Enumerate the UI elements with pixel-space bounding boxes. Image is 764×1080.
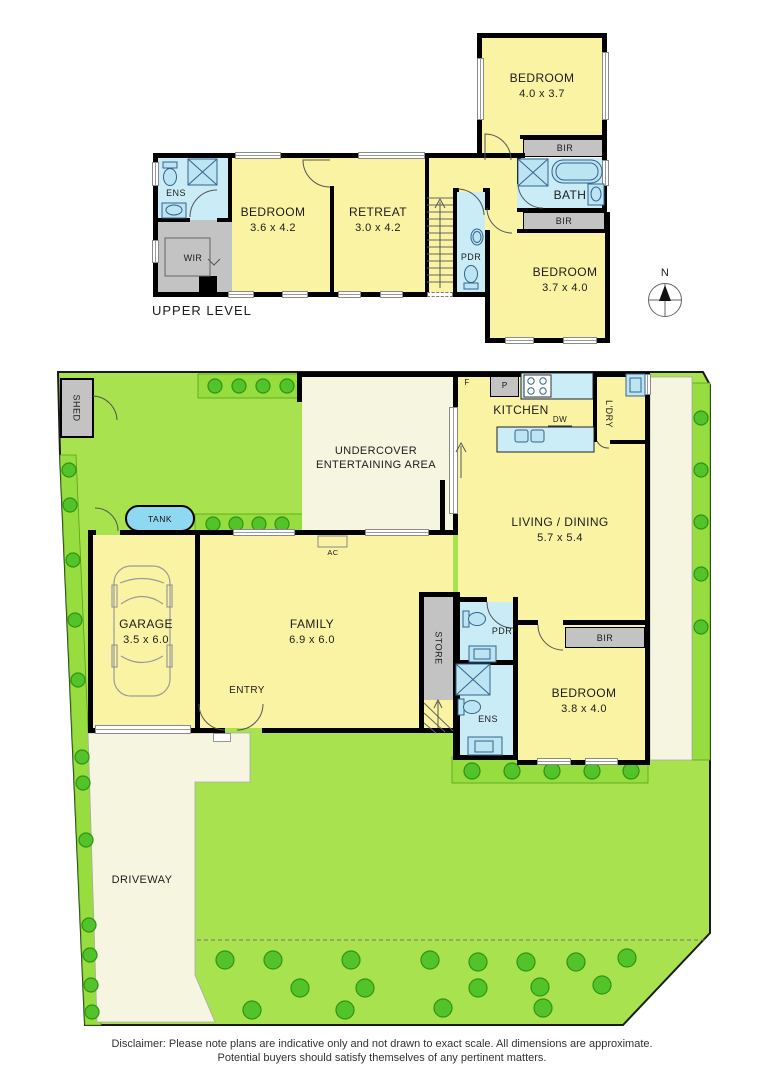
entry-label: ENTRY bbox=[217, 684, 277, 697]
room-label-bedroom-left: BEDROOM 3.6 x 4.2 bbox=[213, 205, 333, 235]
laundry-trough-icon bbox=[626, 374, 645, 396]
disclaimer-line-2: Potential buyers should satisfy themselv… bbox=[0, 1052, 764, 1064]
room-label-bedroom-ground: BEDROOM 3.8 x 4.0 bbox=[519, 686, 649, 716]
pdr-label-ground: PDR bbox=[482, 626, 522, 638]
ground-pdr-basin-icon bbox=[469, 646, 496, 662]
ens-toilet-icon bbox=[163, 162, 177, 186]
store-label: STORE bbox=[426, 617, 451, 679]
cooktop-icon bbox=[524, 375, 551, 397]
bath-shower-icon bbox=[518, 159, 548, 186]
driveway-label: DRIVEWAY bbox=[92, 873, 192, 887]
dishwasher-label: DW bbox=[546, 415, 574, 425]
undercover-label: UNDERCOVER ENTERTAINING AREA bbox=[315, 444, 437, 473]
wir-label: WIR bbox=[163, 253, 223, 265]
room-label-retreat: RETREAT 3.0 x 4.2 bbox=[318, 205, 438, 235]
bathtub-icon bbox=[552, 160, 602, 183]
slider-arrow-icon bbox=[456, 443, 466, 478]
ground-ens-basin-icon bbox=[468, 737, 502, 755]
stairs-ground-icon bbox=[424, 700, 453, 733]
ens-basin-icon bbox=[162, 203, 186, 218]
room-label-bedroom-right: BEDROOM 3.7 x 4.0 bbox=[500, 265, 630, 295]
shed-label: SHED bbox=[60, 378, 94, 438]
ground-ens-toilet-icon bbox=[458, 699, 481, 715]
ground-pdr-toilet-icon bbox=[463, 611, 486, 627]
room-label-living: LIVING / DINING 5.7 x 5.4 bbox=[495, 515, 625, 545]
north-label: N bbox=[656, 266, 674, 280]
upper-pdr-toilet-icon bbox=[464, 266, 478, 290]
ens-label-ground: ENS bbox=[468, 714, 508, 726]
kitchen-island bbox=[497, 426, 594, 452]
bath-label: BATH bbox=[540, 188, 600, 204]
floorplan-page: BIR BIR BIR TANK P bbox=[0, 0, 764, 1080]
pdr-label-upper: PDR bbox=[446, 252, 496, 264]
upper-level-title: UPPER LEVEL bbox=[152, 303, 252, 320]
ens-label-upper: ENS bbox=[146, 188, 206, 200]
laundry-label: L'DRY bbox=[598, 385, 620, 443]
ground-ens-shower-icon bbox=[456, 664, 490, 695]
ac-label: AC bbox=[319, 548, 347, 558]
ac-unit-icon bbox=[318, 536, 347, 547]
room-label-family: FAMILY 6.9 x 6.0 bbox=[252, 617, 372, 647]
ens-shower-icon bbox=[188, 159, 217, 185]
disclaimer-line-1: Disclaimer: Please note plans are indica… bbox=[0, 1038, 764, 1050]
fridge-label: F bbox=[460, 378, 474, 388]
detail-overlay bbox=[0, 0, 764, 1080]
upper-pdr-basin-icon bbox=[471, 229, 483, 245]
room-label-garage: GARAGE 3.5 x 6.0 bbox=[86, 617, 206, 647]
north-arrow-icon bbox=[649, 284, 682, 317]
room-label-bedroom-top: BEDROOM 4.0 x 3.7 bbox=[482, 71, 602, 101]
